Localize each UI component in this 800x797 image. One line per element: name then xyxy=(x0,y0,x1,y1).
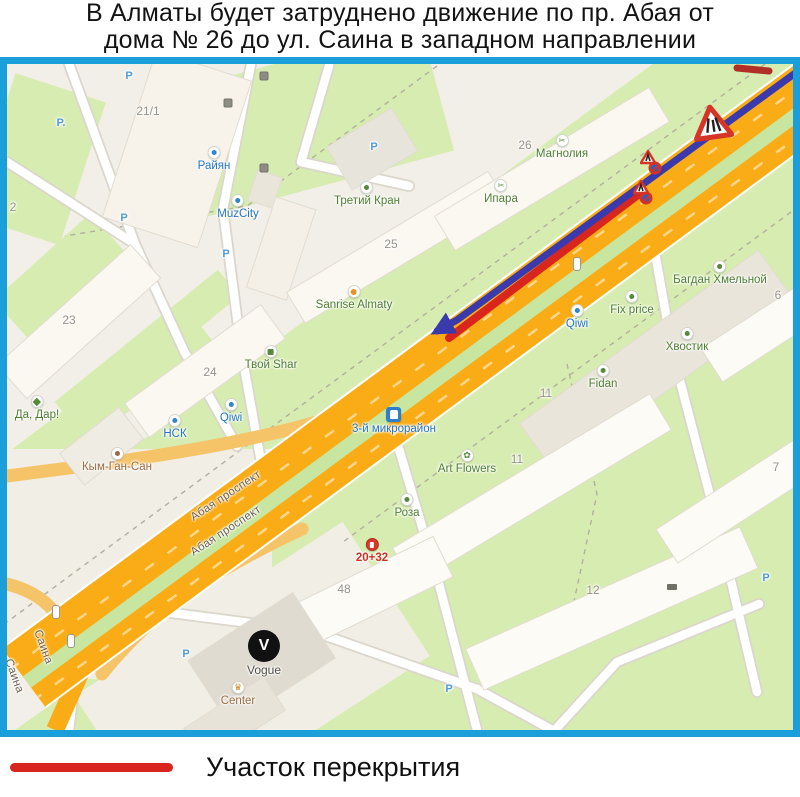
vogue-logo-icon: V xyxy=(248,630,280,662)
poi-nsk[interactable]: НСК xyxy=(163,414,186,440)
map-frame: Абая проспект Абая проспект Саина Саина … xyxy=(0,57,800,737)
legend: Участок перекрытия xyxy=(0,737,800,797)
poi-tvoy-shar[interactable]: Твой Shar xyxy=(245,345,298,371)
poi-dot-icon xyxy=(571,304,584,317)
map-canvas[interactable] xyxy=(7,64,793,730)
building-number: 25 xyxy=(384,237,397,251)
shop-icon xyxy=(265,345,278,358)
poi-da-dar[interactable]: Да, Дар! xyxy=(15,395,59,421)
poi-fix-price[interactable]: Fix price xyxy=(610,290,653,316)
scissors-icon xyxy=(495,179,508,192)
traffic-light-icon xyxy=(573,257,581,271)
gift-icon xyxy=(30,395,43,408)
parking-marker: P xyxy=(125,70,132,82)
closure-line-sample xyxy=(10,763,173,772)
parking-marker: P xyxy=(762,572,769,584)
poi-ipara[interactable]: Ипара xyxy=(484,179,518,205)
poi-art-flowers[interactable]: Art Flowers xyxy=(438,449,496,475)
building-number: 23 xyxy=(62,313,75,327)
traffic-light-icon xyxy=(67,634,75,648)
poi-dot-icon xyxy=(169,414,182,427)
poi-kym-gan-san[interactable]: Кым-Ган-Сан xyxy=(82,447,152,473)
parking-marker: P xyxy=(182,648,189,660)
poi-dot-icon xyxy=(208,146,221,159)
poi-dot-icon xyxy=(225,398,238,411)
institution-icon xyxy=(260,164,269,173)
building-number: 26 xyxy=(518,138,531,152)
institution-icon xyxy=(224,99,233,108)
parking-marker: P xyxy=(445,683,452,695)
institution-icon xyxy=(260,72,269,81)
crown-icon xyxy=(232,681,245,694)
basket-icon xyxy=(625,290,638,303)
building-number: 11 xyxy=(511,452,523,466)
no-stopping-sign xyxy=(640,192,653,205)
poi-khvostik[interactable]: Хвостик xyxy=(666,327,709,353)
basket-icon xyxy=(597,364,610,377)
building-number: 11 xyxy=(540,386,552,400)
closure-label: Участок перекрытия xyxy=(206,752,460,783)
parking-marker: P xyxy=(222,248,229,260)
poi-tretiy-kran[interactable]: Третий Кран xyxy=(334,181,400,207)
parking-marker: P xyxy=(370,141,377,153)
restaurant-icon xyxy=(110,447,123,460)
poi-dot-icon xyxy=(360,181,373,194)
beer-icon xyxy=(714,260,727,273)
traffic-light-icon xyxy=(52,605,60,619)
poi-muzcity[interactable]: MuzCity xyxy=(217,194,259,220)
no-stopping-sign xyxy=(649,162,662,175)
poi-sanrise-almaty[interactable]: Sanrise Almaty xyxy=(316,285,393,311)
poi-center[interactable]: Center xyxy=(221,681,256,707)
poi-vogue[interactable]: V Vogue xyxy=(247,630,281,677)
title-line-2: дома № 26 до ул. Саина в западном направ… xyxy=(0,27,800,54)
bench-icon xyxy=(667,584,677,590)
poi-qiwi-2[interactable]: Qiwi xyxy=(566,304,588,330)
poi-qiwi-1[interactable]: Qiwi xyxy=(220,398,242,424)
scissors-icon xyxy=(556,134,569,147)
building-number: 48 xyxy=(337,582,350,596)
building-number: 21/1 xyxy=(136,104,159,118)
basket-icon xyxy=(400,493,413,506)
map[interactable]: Абая проспект Абая проспект Саина Саина … xyxy=(7,64,793,730)
page: В Алматы будет затруднено движение по пр… xyxy=(0,0,800,797)
parking-marker: P xyxy=(120,212,127,224)
poi-rayan[interactable]: Райян xyxy=(198,146,231,172)
poi-bagdan-khmelnoy[interactable]: Багдан Хмельной xyxy=(673,260,767,286)
poi-20-32[interactable]: 20+32 xyxy=(356,538,388,564)
poi-dot-icon xyxy=(232,194,245,207)
parking-marker: P. xyxy=(57,117,66,129)
poi-bus-stop-3-mikroraion[interactable]: 3-й микрорайон xyxy=(352,407,436,435)
page-title: В Алматы будет затруднено движение по пр… xyxy=(0,0,800,57)
building-number: 7 xyxy=(773,460,780,474)
bus-stop-icon xyxy=(387,407,402,422)
building-number: 6 xyxy=(775,288,782,302)
poi-roza[interactable]: Роза xyxy=(394,493,419,519)
poi-magnolia[interactable]: Магнолия xyxy=(536,134,588,160)
building-number: 24 xyxy=(203,365,216,379)
building-number: 2 xyxy=(10,200,17,214)
title-line-1: В Алматы будет затруднено движение по пр… xyxy=(0,0,800,27)
fire-equipment-icon xyxy=(366,538,379,551)
paw-icon xyxy=(681,327,694,340)
cafe-icon xyxy=(347,285,360,298)
building-number: 12 xyxy=(586,583,599,597)
poi-fidan[interactable]: Fidan xyxy=(589,364,618,390)
road-narrows-warning-sign xyxy=(690,101,735,142)
flower-icon xyxy=(461,449,474,462)
